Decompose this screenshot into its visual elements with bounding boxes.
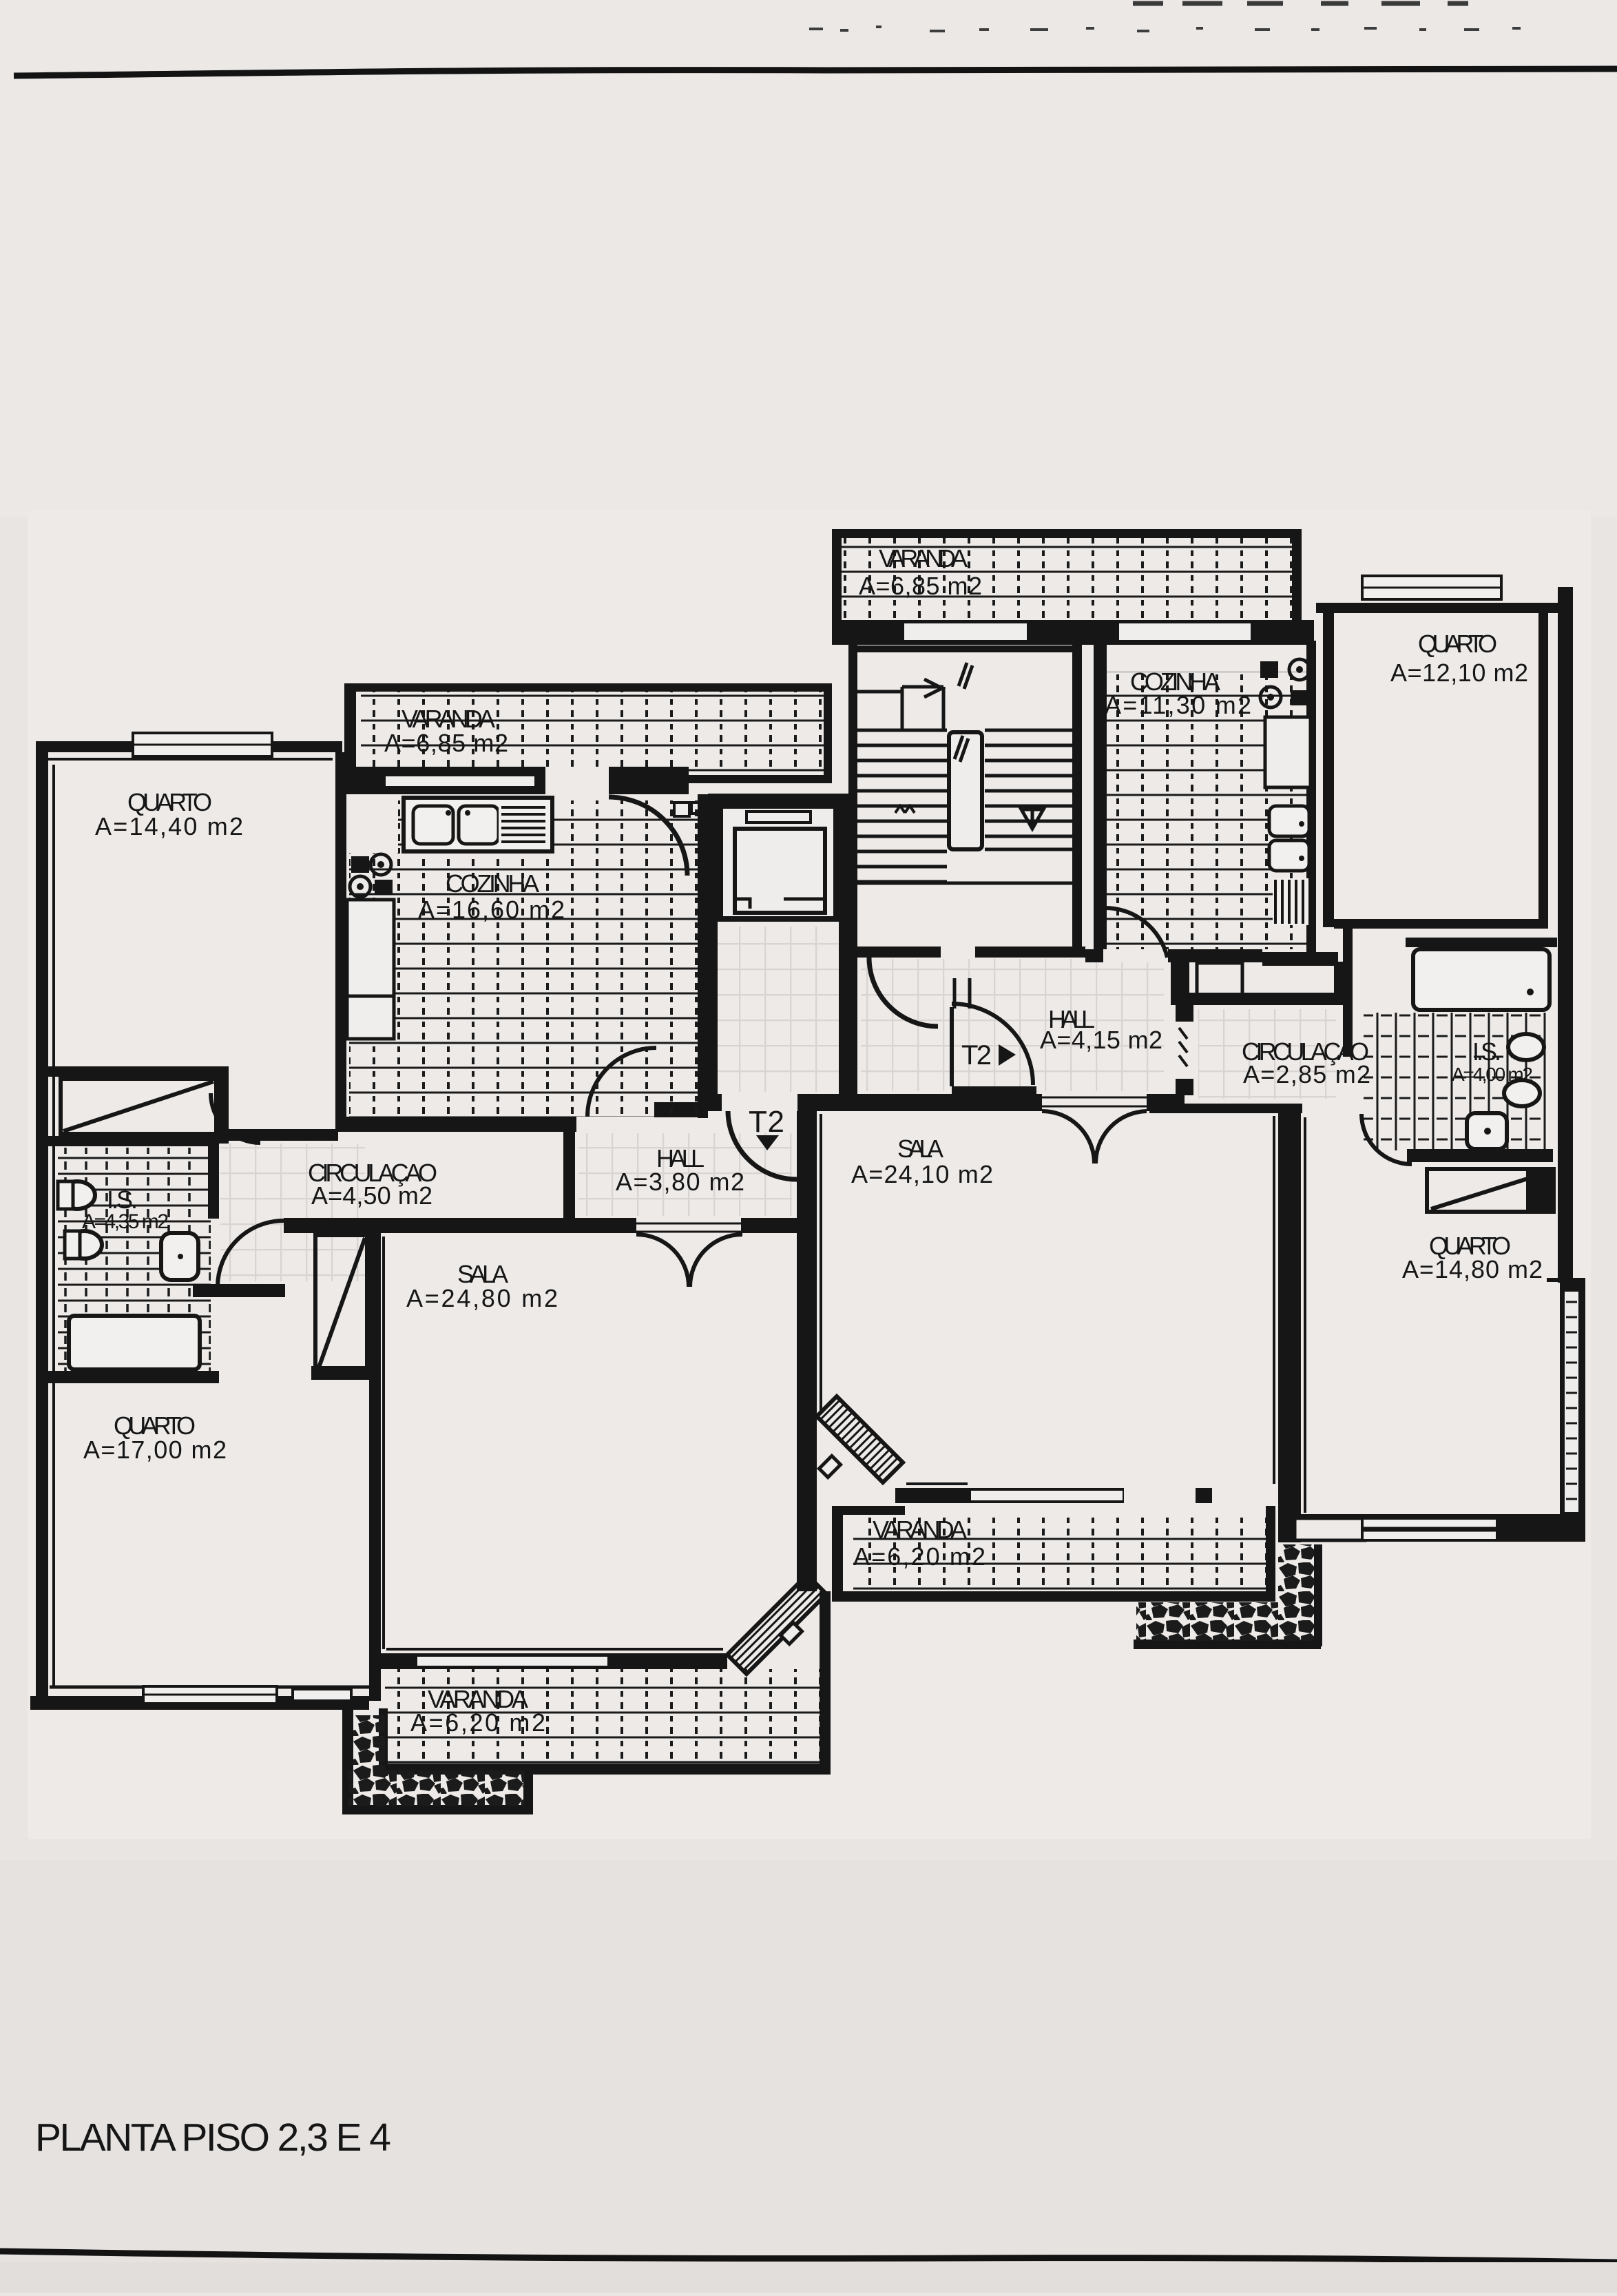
svg-text:A=6,20 m2: A=6,20 m2 <box>410 1708 547 1737</box>
svg-text:A=3,80 m2: A=3,80 m2 <box>616 1168 746 1196</box>
svg-text:A=12,10 m2: A=12,10 m2 <box>1390 659 1530 687</box>
svg-text:A=24,10 m2: A=24,10 m2 <box>851 1160 994 1188</box>
svg-text:VARANDA: VARANDA <box>879 544 969 572</box>
svg-text:A=4,15 m2: A=4,15 m2 <box>1040 1026 1164 1054</box>
svg-text:A=6,85 m2: A=6,85 m2 <box>859 572 983 600</box>
svg-text:I.S.: I.S. <box>107 1186 139 1214</box>
svg-text:A=4,00 m2: A=4,00 m2 <box>1452 1064 1534 1085</box>
svg-text:A=11,30 m2: A=11,30 m2 <box>1105 691 1253 719</box>
svg-text:A=4,35 m2: A=4,35 m2 <box>82 1210 170 1233</box>
svg-text:A=2,85 m2: A=2,85 m2 <box>1243 1060 1372 1088</box>
svg-text:COZINHA: COZINHA <box>446 869 541 898</box>
svg-text:A=14,80 m2: A=14,80 m2 <box>1402 1255 1544 1283</box>
svg-text:A=17,00 m2: A=17,00 m2 <box>83 1436 228 1464</box>
svg-text:A=14,40 m2: A=14,40 m2 <box>95 812 244 840</box>
svg-text:T2: T2 <box>749 1105 786 1139</box>
svg-text:A=6,20 m2: A=6,20 m2 <box>853 1542 987 1571</box>
svg-text:I.S.: I.S. <box>1472 1037 1503 1066</box>
svg-text:SALA: SALA <box>897 1135 945 1163</box>
svg-text:QUARTO: QUARTO <box>1418 630 1499 658</box>
svg-text:A=4,50 m2: A=4,50 m2 <box>311 1181 434 1210</box>
svg-text:PLANTA PISO 2,3 E 4: PLANTA PISO 2,3 E 4 <box>35 2116 393 2160</box>
svg-text:VARANDA: VARANDA <box>873 1516 968 1544</box>
svg-text:T2: T2 <box>961 1040 993 1071</box>
svg-text:A=6,85 m2: A=6,85 m2 <box>384 729 510 757</box>
svg-text:A=16,60 m2: A=16,60 m2 <box>418 896 566 924</box>
svg-text:A=24,80 m2: A=24,80 m2 <box>406 1284 559 1312</box>
